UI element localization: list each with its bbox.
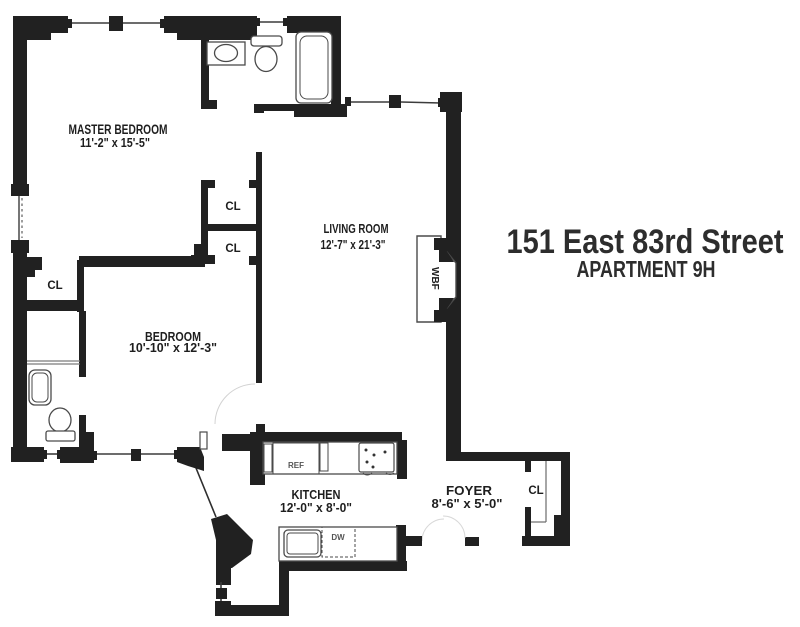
svg-text:LIVING ROOM: LIVING ROOM [324, 221, 389, 236]
svg-text:10'-10" x 12'-3": 10'-10" x 12'-3" [129, 341, 217, 355]
svg-text:12'-0" x 8'-0": 12'-0" x 8'-0" [280, 501, 352, 515]
svg-text:APARTMENT 9H: APARTMENT 9H [577, 256, 716, 282]
svg-text:CL: CL [528, 485, 543, 497]
svg-text:REF: REF [288, 461, 304, 470]
svg-text:DW: DW [331, 533, 345, 542]
svg-text:CL: CL [47, 280, 62, 292]
svg-text:CL: CL [225, 243, 240, 255]
svg-text:12'-7" x 21'-3": 12'-7" x 21'-3" [321, 238, 386, 252]
svg-text:FOYER: FOYER [446, 483, 493, 498]
svg-text:KITCHEN: KITCHEN [292, 487, 341, 502]
svg-text:MASTER BEDROOM: MASTER BEDROOM [69, 122, 168, 137]
svg-text:8'-6" x 5'-0": 8'-6" x 5'-0" [432, 497, 503, 511]
svg-text:WBF: WBF [429, 267, 440, 290]
svg-text:11'-2" x 15'-5": 11'-2" x 15'-5" [80, 136, 150, 150]
svg-text:CL: CL [225, 201, 240, 213]
